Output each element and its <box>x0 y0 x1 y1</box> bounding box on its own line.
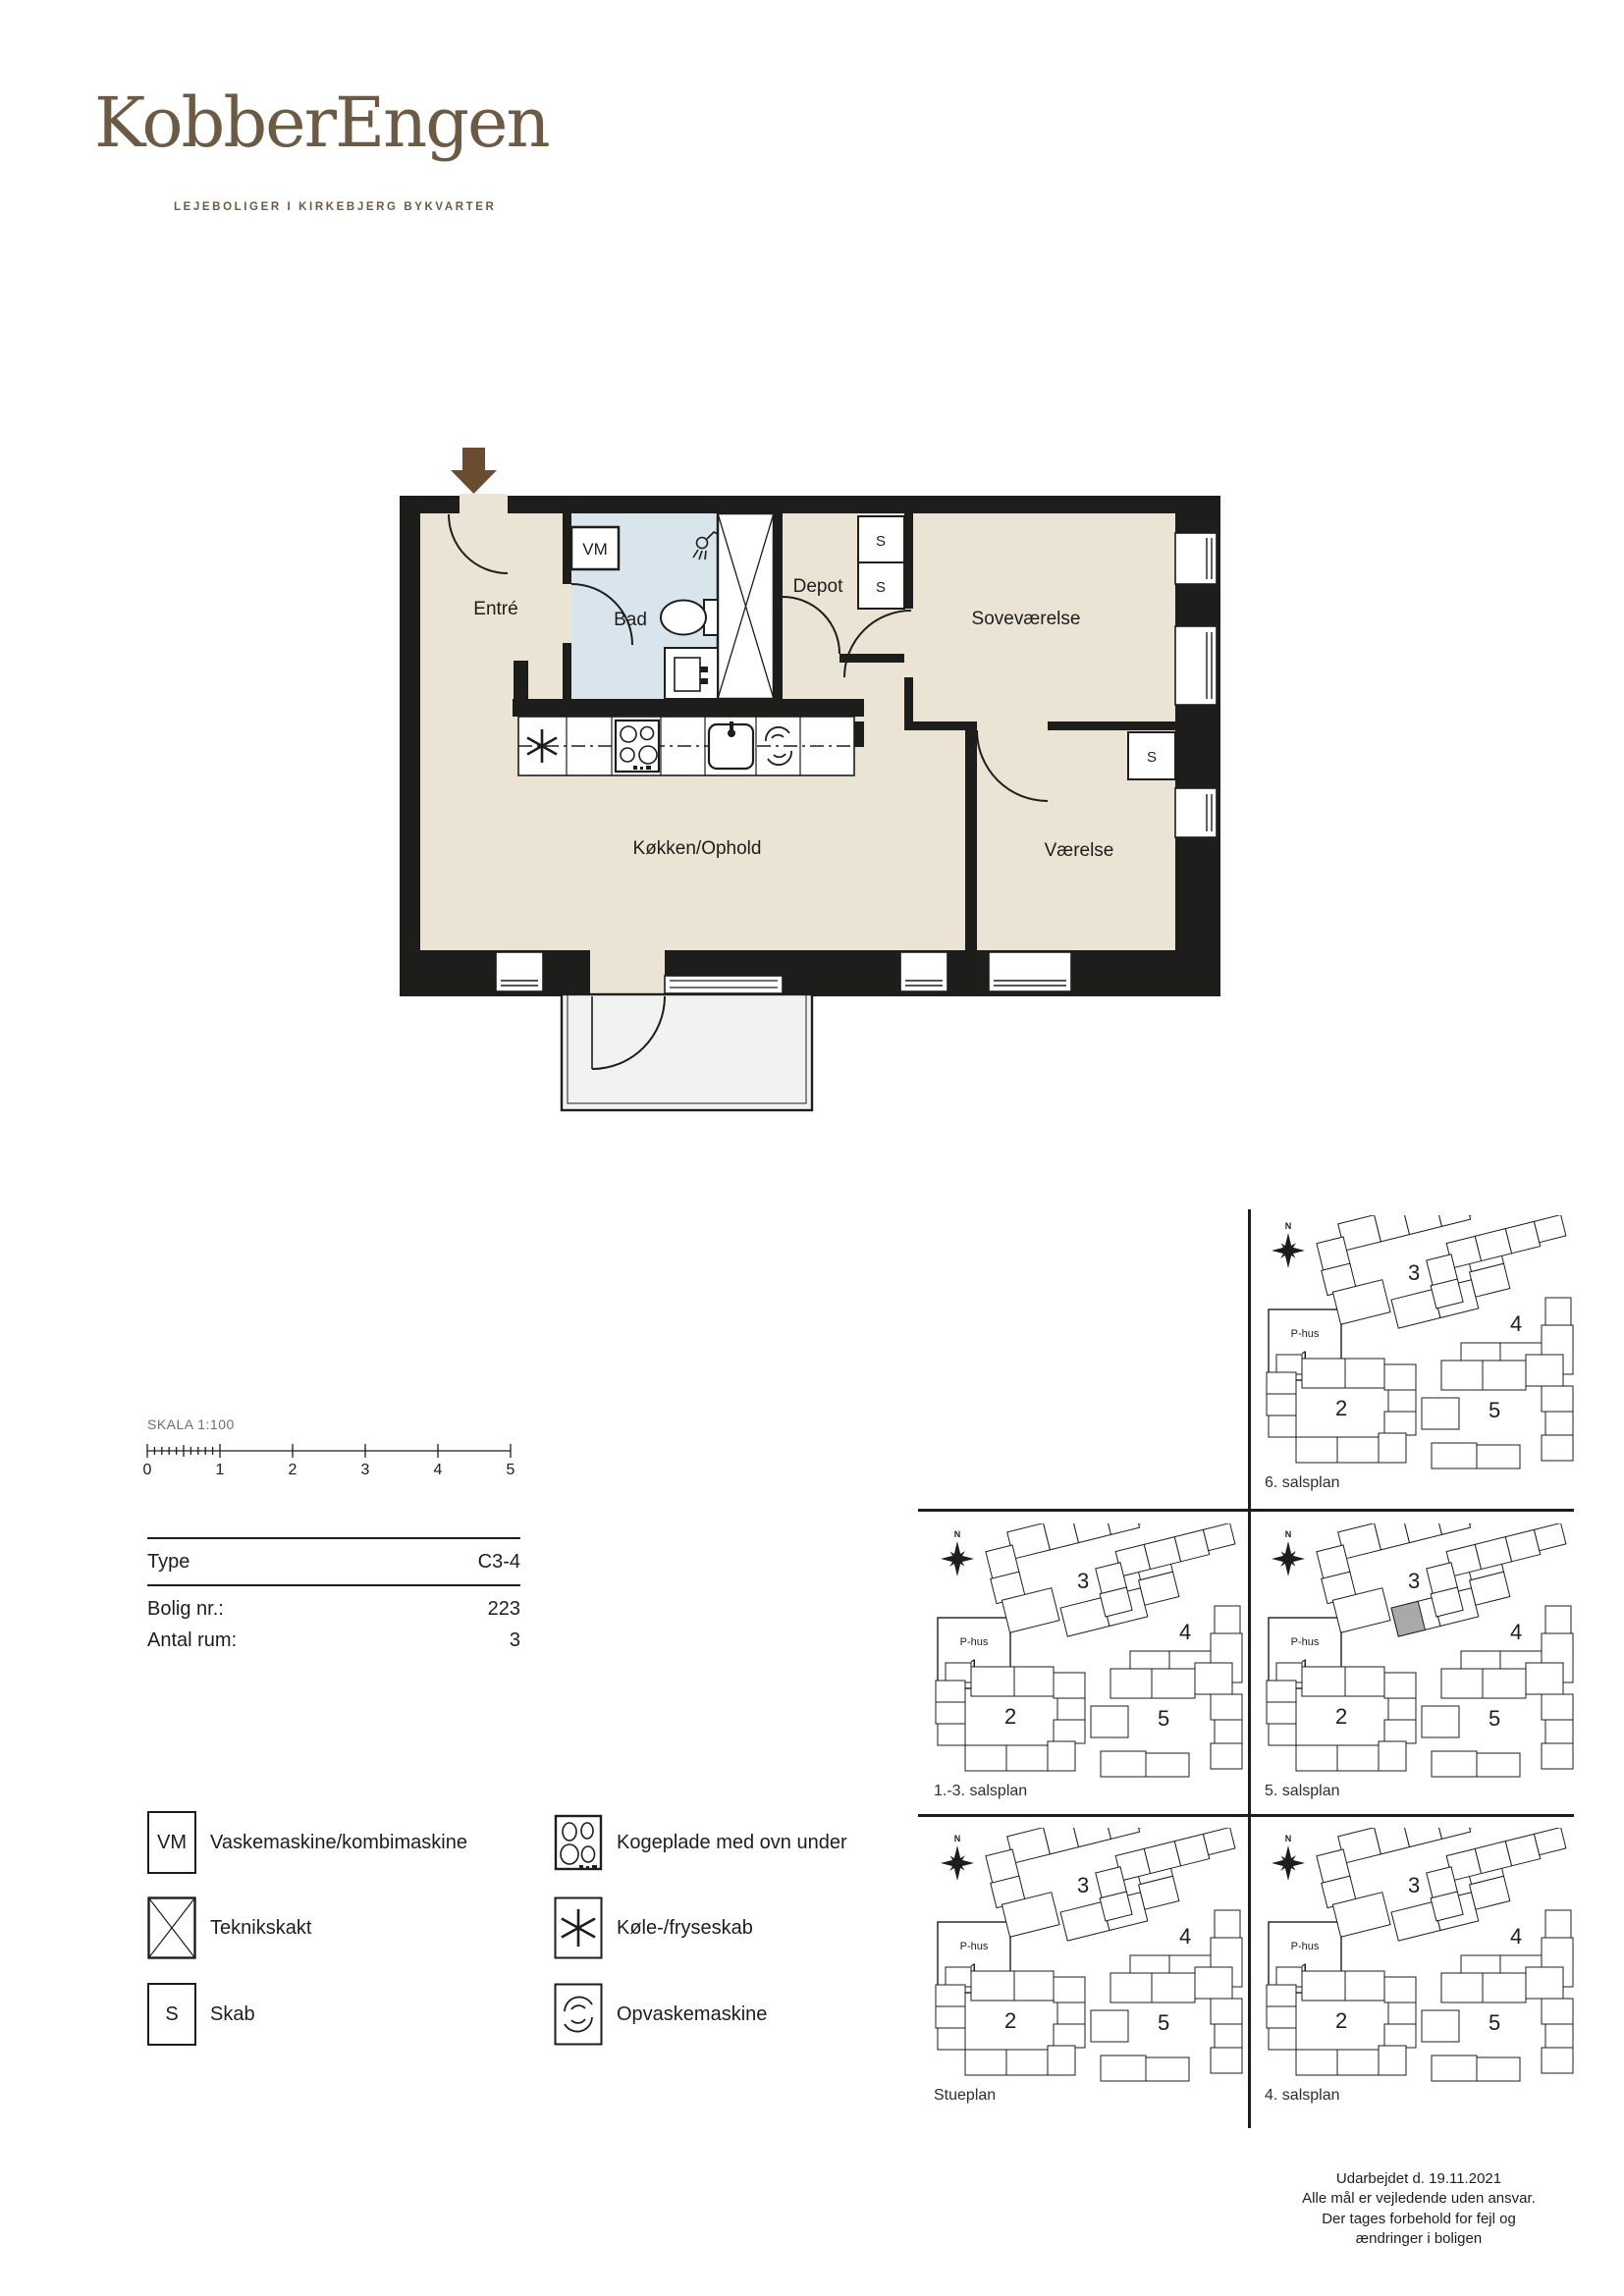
kitchen-sink-icon <box>709 721 753 769</box>
washing-machine-symbol: VM <box>147 1811 196 1874</box>
footer-line: Alle mål er vejledende uden ansvar. <box>1218 2189 1620 2209</box>
legend-item-cooktop: Kogeplade med ovn under <box>554 1811 603 1874</box>
footer-note: Udarbejdet d. 19.11.2021 Alle mål er vej… <box>1218 2169 1620 2249</box>
washing-machine-marker: VM <box>571 527 619 569</box>
siteplan-grid-divider <box>918 1814 1574 1817</box>
cooktop-icon <box>554 1811 603 1874</box>
site-plan-cell-1-3-salsplan: 1.-3. salsplan <box>928 1523 1254 1810</box>
cabinet-marker: S <box>876 579 886 596</box>
site-plan-map <box>928 1523 1252 1779</box>
site-plan-cell-stueplan: Stueplan <box>928 1828 1254 2114</box>
cooktop-icon <box>616 721 659 772</box>
info-row-type: Type C3-4 <box>147 1551 520 1574</box>
balcony <box>562 994 812 1110</box>
scale-bar: 0 1 2 3 4 5 <box>141 1435 534 1480</box>
site-plan-cell-5-salsplan: 5. salsplan <box>1259 1523 1585 1810</box>
dishwasher-icon <box>554 1983 603 2046</box>
site-plan-label: 6. salsplan <box>1265 1474 1340 1492</box>
cabinet-marker: S <box>1147 749 1157 766</box>
brand-logo: KobberEngen <box>94 82 549 163</box>
sink-icon <box>665 648 718 699</box>
window <box>1175 788 1217 837</box>
toilet-icon <box>661 600 718 635</box>
brand-tagline: LEJEBOLIGER I KIRKEBJERG BYKVARTER <box>174 201 496 213</box>
info-value: 3 <box>510 1629 520 1652</box>
floor-plan: VM S S S <box>398 442 1222 1119</box>
balcony-door-opening <box>590 950 665 996</box>
site-plan-cell-6-salsplan: 6. salsplan <box>1259 1215 1585 1502</box>
scale-tick-label: 4 <box>434 1462 443 1478</box>
legend-item-shaft: Teknikskakt <box>147 1896 196 1959</box>
info-label: Bolig nr.: <box>147 1598 224 1621</box>
site-plan-cell-4-salsplan: 4. salsplan <box>1259 1828 1585 2114</box>
site-plan-label: Stueplan <box>934 2087 996 2105</box>
site-plan-map <box>928 1828 1252 2083</box>
technical-shaft <box>718 513 774 699</box>
info-row-bolig: Bolig nr.: 223 <box>147 1598 520 1621</box>
scale-label: SKALA 1:100 <box>147 1416 235 1432</box>
site-plan-label: 5. salsplan <box>1265 1783 1340 1800</box>
info-label: Antal rum: <box>147 1629 237 1652</box>
legend-label: Opvaskemaskine <box>617 1983 767 2046</box>
windows-right <box>1175 533 1217 837</box>
window <box>1175 533 1217 584</box>
legend-item-dishwasher: Opvaskemaskine <box>554 1983 603 2046</box>
window <box>496 952 543 991</box>
svg-text:VM: VM <box>582 540 608 559</box>
room-label-bad: Bad <box>614 610 647 630</box>
scale-tick-label: 2 <box>289 1462 298 1478</box>
siteplan-grid-divider <box>918 1509 1574 1512</box>
window <box>1175 626 1217 705</box>
info-value: 223 <box>488 1598 520 1621</box>
footer-line: Der tages forbehold for fejl og <box>1218 2210 1620 2229</box>
legend-label: Skab <box>210 1983 255 2046</box>
entrance-arrow-icon <box>451 448 497 494</box>
divider <box>147 1584 520 1586</box>
scale-tick-label: 3 <box>361 1462 370 1478</box>
site-plan-label: 4. salsplan <box>1265 2087 1340 2105</box>
scale-tick-label: 1 <box>216 1462 225 1478</box>
legend-item-fridge: Køle-/fryseskab <box>554 1896 603 1959</box>
footer-line: Udarbejdet d. 19.11.2021 <box>1218 2169 1620 2189</box>
cabinet-marker: S <box>876 533 886 550</box>
cabinet-symbol: S <box>147 1983 196 2046</box>
room-label-depot: Depot <box>793 576 843 597</box>
info-table: Type C3-4 Bolig nr.: 223 Antal rum: 3 <box>147 1537 520 1665</box>
kitchen-counter <box>518 717 854 775</box>
scale-tick-label: 5 <box>507 1462 515 1478</box>
room-label-kokken: Køkken/Ophold <box>633 838 762 859</box>
room-label-entre: Entré <box>473 599 517 619</box>
scale-tick-label: 0 <box>143 1462 152 1478</box>
info-value: C3-4 <box>478 1551 520 1574</box>
balcony-window-strip <box>665 976 783 993</box>
window <box>989 952 1071 991</box>
entrance-opening <box>460 494 508 514</box>
divider <box>147 1537 520 1539</box>
site-plan-label: 1.-3. salsplan <box>934 1783 1027 1800</box>
legend-label: Kogeplade med ovn under <box>617 1811 847 1874</box>
fridge-icon <box>554 1896 603 1959</box>
technical-shaft-icon <box>147 1896 196 1959</box>
room-label-vaerelse: Værelse <box>1045 840 1114 861</box>
legend: VM Vaskemaskine/kombimaskine Teknikskakt… <box>147 1811 874 2056</box>
site-plan-map <box>1259 1215 1583 1470</box>
site-plan-map <box>1259 1828 1583 2083</box>
info-label: Type <box>147 1551 189 1574</box>
footer-line: ændringer i boligen <box>1218 2229 1620 2249</box>
info-row-rum: Antal rum: 3 <box>147 1629 520 1652</box>
legend-label: Køle-/fryseskab <box>617 1896 753 1959</box>
site-plan-map <box>1259 1523 1583 1779</box>
legend-label: Teknikskakt <box>210 1896 311 1959</box>
room-label-sovevaerelse: Soveværelse <box>972 609 1081 629</box>
window <box>900 952 947 991</box>
legend-label: Vaskemaskine/kombimaskine <box>210 1811 467 1874</box>
